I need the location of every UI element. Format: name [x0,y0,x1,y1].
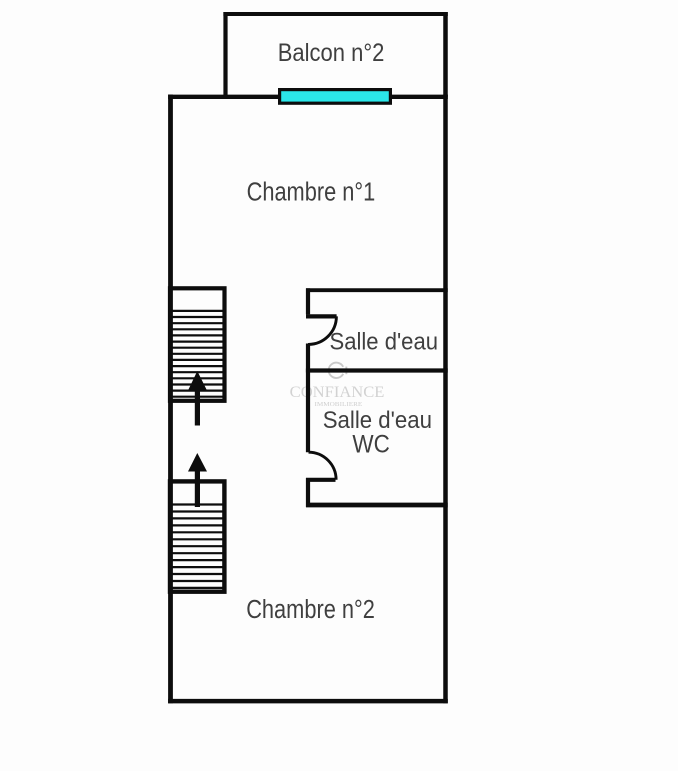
svg-text:WC: WC [352,431,389,458]
svg-text:CONFIANCE: CONFIANCE [290,384,385,401]
svg-text:Balcon n°2: Balcon n°2 [278,39,385,67]
svg-text:Salle d'eau: Salle d'eau [323,407,432,434]
svg-text:Salle d'eau: Salle d'eau [330,329,439,356]
svg-text:Chambre n°2: Chambre n°2 [246,596,375,624]
svg-text:Chambre n°1: Chambre n°1 [247,178,376,206]
